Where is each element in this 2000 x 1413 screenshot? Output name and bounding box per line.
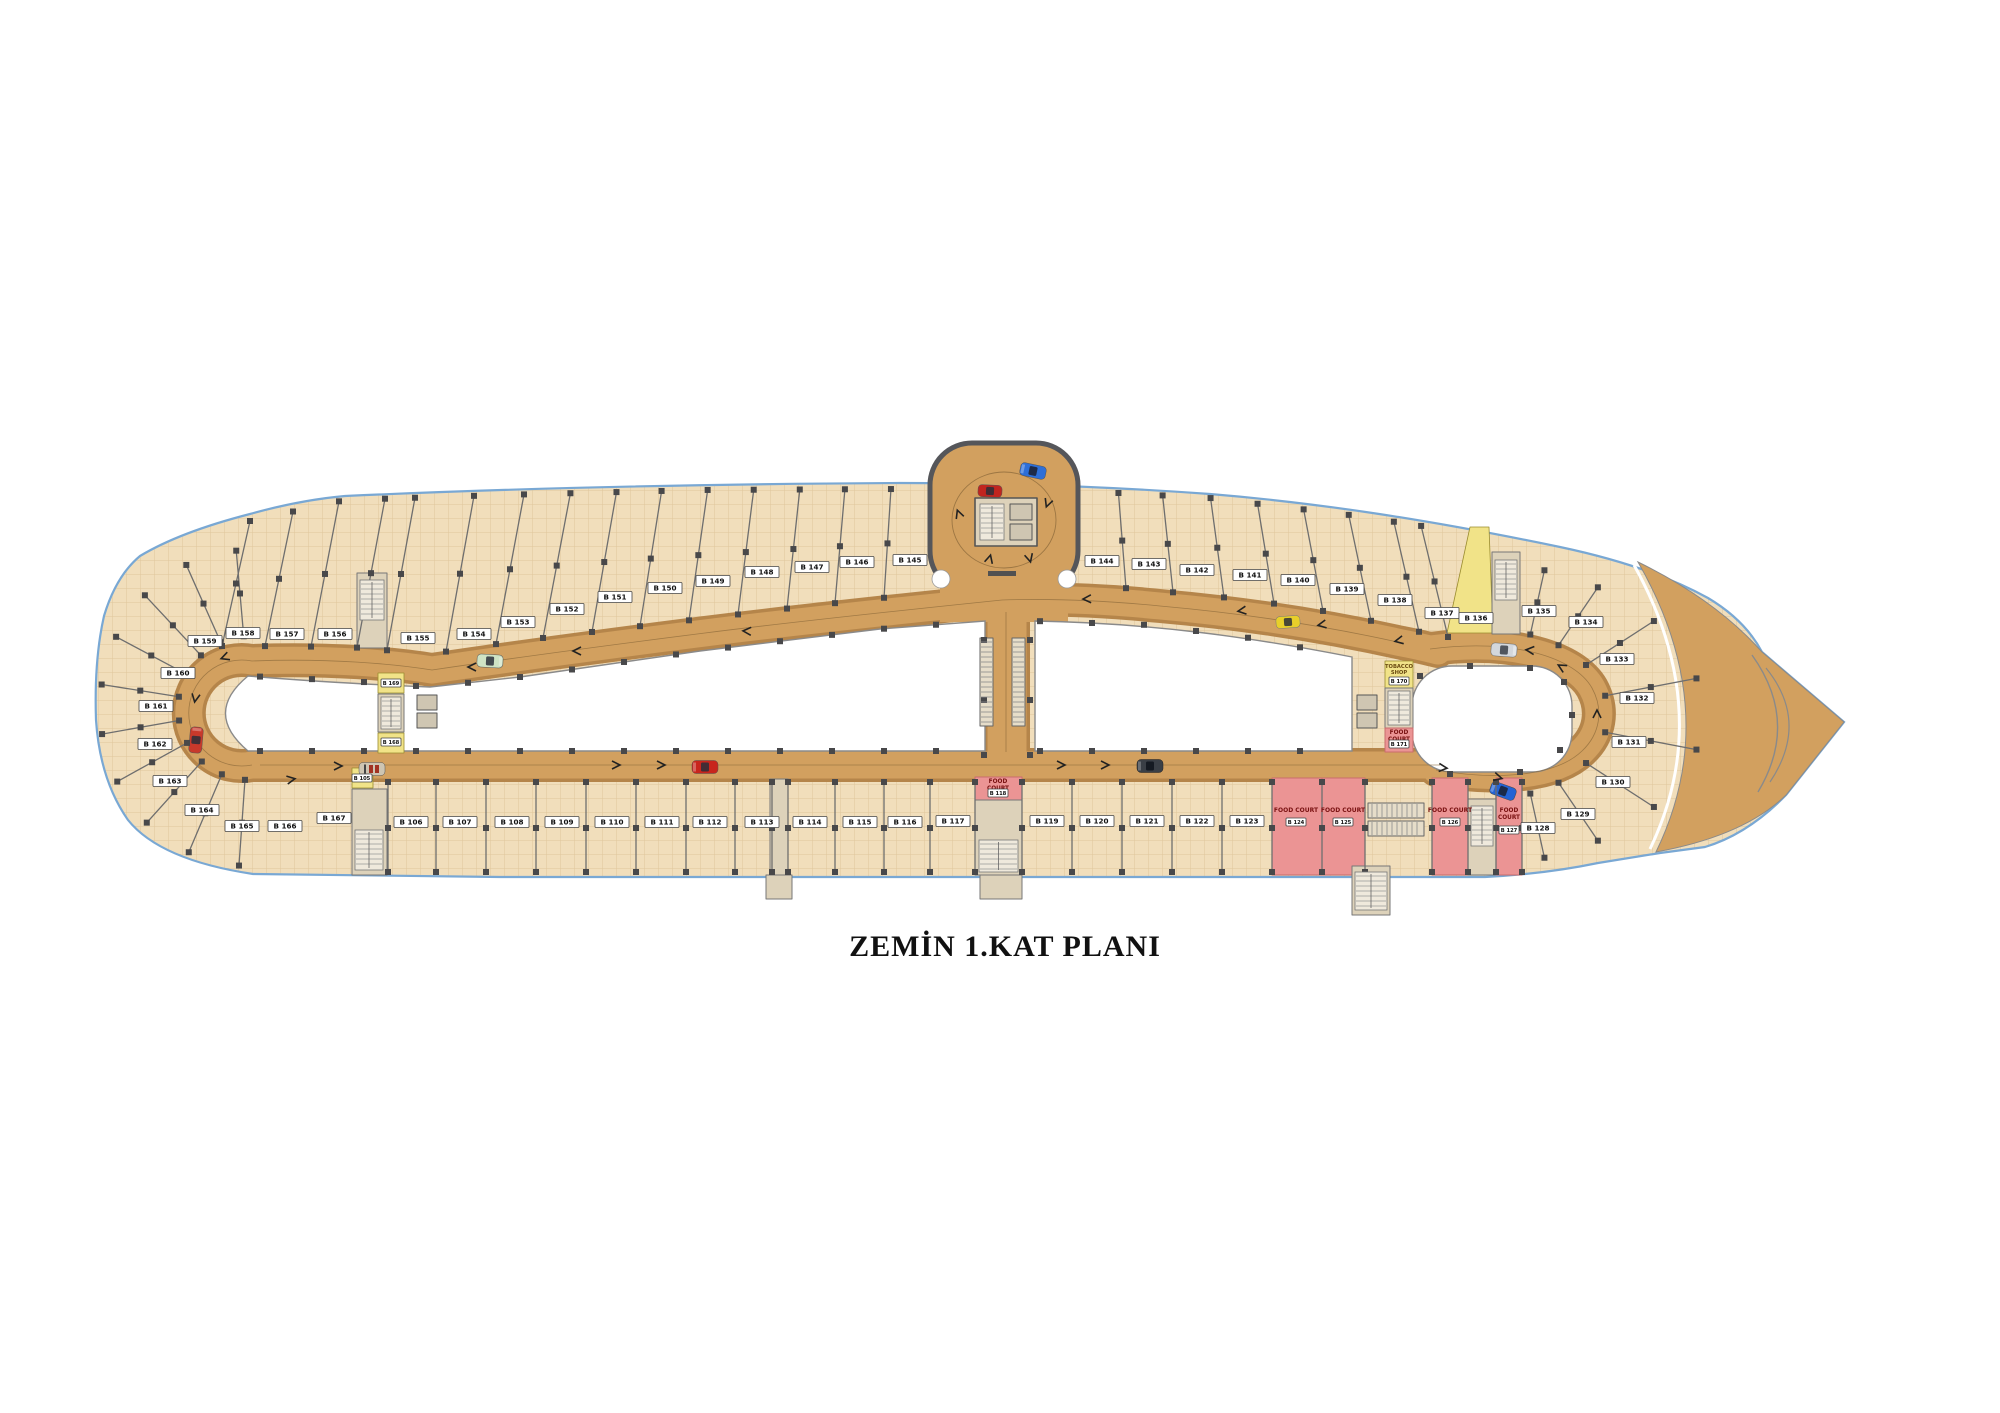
unit-label-B-161: B 161 [139, 701, 173, 712]
stairs-icon [381, 697, 401, 729]
svg-text:B 153: B 153 [507, 618, 530, 627]
unit-label-B-142: B 142 [1180, 565, 1214, 576]
unit-label-B-152: B 152 [550, 604, 584, 615]
unit-label-B-154: B 154 [457, 629, 491, 640]
unit-label-B-126: B 126 [1440, 818, 1460, 826]
unit-label-B-105: B 105 [352, 774, 372, 782]
stop-line [988, 571, 1016, 576]
svg-text:B 151: B 151 [604, 593, 627, 602]
unit-label-B-128: B 128 [1521, 823, 1555, 834]
page-title: ZEMİN 1.KAT PLANI [805, 930, 1205, 964]
unit-label-B-115: B 115 [843, 817, 877, 828]
svg-text:B 163: B 163 [159, 777, 182, 786]
svg-text:SHOP: SHOP [1391, 670, 1407, 676]
svg-text:B 134: B 134 [1575, 618, 1598, 627]
unit-label-B-149: B 149 [696, 576, 730, 587]
svg-text:B 108: B 108 [501, 818, 524, 827]
food-court-label: FOOD COURT [1274, 807, 1319, 814]
svg-text:B 122: B 122 [1186, 817, 1209, 826]
core-protrusion [766, 875, 792, 899]
unit-label-B-119: B 119 [1030, 816, 1064, 827]
car-green-upper-road [477, 654, 504, 668]
svg-text:FOOD: FOOD [1500, 808, 1519, 814]
svg-text:FOOD: FOOD [1390, 730, 1409, 736]
unit-label-B-158: B 158 [226, 628, 260, 639]
unit-label-B-169: B 169 [381, 679, 401, 687]
unit-label-B-134: B 134 [1569, 617, 1603, 628]
unit-label-B-167: B 167 [317, 813, 351, 824]
unit-label-B-124: B 124 [1286, 818, 1306, 826]
entry-loop-neck [940, 560, 1068, 622]
unit-label-B-118: B 118 [988, 789, 1008, 797]
svg-text:B 161: B 161 [145, 702, 168, 711]
elevator-icon [1010, 504, 1032, 520]
svg-text:B 171: B 171 [1391, 742, 1408, 748]
car-red-left-loop [188, 726, 203, 753]
svg-text:B 152: B 152 [556, 605, 579, 614]
unit-label-B-165: B 165 [225, 821, 259, 832]
svg-text:B 123: B 123 [1236, 817, 1259, 826]
svg-text:B 143: B 143 [1138, 560, 1161, 569]
svg-text:B 133: B 133 [1606, 655, 1629, 664]
unit-label-B-136: B 136 [1459, 613, 1493, 624]
food-court-b126-area [1432, 778, 1468, 875]
svg-text:B 150: B 150 [654, 584, 677, 593]
svg-text:B 167: B 167 [323, 814, 346, 823]
svg-text:COURT: COURT [1498, 815, 1520, 821]
unit-label-B-153: B 153 [501, 617, 535, 628]
svg-text:B 166: B 166 [274, 822, 297, 831]
neck-notch-left [932, 570, 950, 588]
svg-text:B 138: B 138 [1384, 596, 1407, 605]
unit-label-B-116: B 116 [888, 817, 922, 828]
unit-label-B-110: B 110 [595, 817, 629, 828]
svg-text:B 119: B 119 [1036, 817, 1059, 826]
svg-text:B 121: B 121 [1136, 817, 1159, 826]
svg-text:B 113: B 113 [751, 818, 774, 827]
stairs-icon [1495, 560, 1517, 600]
unit-label-B-117: B 117 [936, 816, 970, 827]
unit-label-B-150: B 150 [648, 583, 682, 594]
unit-label-B-133: B 133 [1600, 654, 1634, 665]
unit-label-B-120: B 120 [1080, 816, 1114, 827]
svg-text:B 135: B 135 [1528, 607, 1551, 616]
unit-label-B-147: B 147 [795, 562, 829, 573]
elevator-icon [417, 713, 437, 728]
svg-text:B 118: B 118 [990, 791, 1007, 797]
svg-text:B 131: B 131 [1618, 738, 1641, 747]
neck-notch-right [1058, 570, 1076, 588]
unit-label-B-107: B 107 [443, 817, 477, 828]
svg-text:B 145: B 145 [899, 556, 922, 565]
svg-text:B 115: B 115 [849, 818, 872, 827]
unit-label-B-156: B 156 [318, 629, 352, 640]
unit-label-B-108: B 108 [495, 817, 529, 828]
svg-text:B 147: B 147 [801, 563, 824, 572]
unit-label-B-138: B 138 [1378, 595, 1412, 606]
svg-text:B 130: B 130 [1602, 778, 1625, 787]
svg-text:B 120: B 120 [1086, 817, 1109, 826]
svg-text:B 156: B 156 [324, 630, 347, 639]
stairs-icon [355, 830, 383, 870]
svg-text:FOOD: FOOD [989, 779, 1008, 785]
svg-text:B 165: B 165 [231, 822, 254, 831]
unit-label-B-123: B 123 [1230, 816, 1264, 827]
car-black-lower-road [1137, 760, 1163, 773]
unit-label-B-125: B 125 [1333, 818, 1353, 826]
unit-label-B-137: B 137 [1425, 608, 1459, 619]
unit-label-B-127: B 127 [1499, 826, 1519, 834]
svg-text:B 164: B 164 [191, 806, 214, 815]
unit-label-B-160: B 160 [161, 668, 195, 679]
unit-label-B-144: B 144 [1085, 556, 1119, 567]
food-court-label: FOODCOURT [1498, 808, 1520, 821]
svg-text:B 149: B 149 [702, 577, 725, 586]
floor-plan-page: B 158B 157B 156B 155B 154B 153B 152B 151… [0, 0, 2000, 1413]
unit-label-B-131: B 131 [1612, 737, 1646, 748]
svg-text:FOOD COURT: FOOD COURT [1321, 807, 1366, 814]
stairs-icon [980, 504, 1004, 540]
unit-label-B-168: B 168 [381, 738, 401, 746]
unit-label-B-143: B 143 [1132, 559, 1166, 570]
svg-text:B 117: B 117 [942, 817, 965, 826]
svg-text:B 162: B 162 [144, 740, 167, 749]
svg-text:B 124: B 124 [1288, 820, 1305, 826]
svg-text:B 129: B 129 [1567, 810, 1590, 819]
escalator-icon [1368, 821, 1424, 836]
right-loop-island [1412, 666, 1572, 772]
car-silver-right-loop [1491, 643, 1518, 658]
unit-label-B-130: B 130 [1596, 777, 1630, 788]
unit-label-B-151: B 151 [598, 592, 632, 603]
unit-label-B-171: B 171 [1389, 740, 1409, 748]
unit-label-B-114: B 114 [793, 817, 827, 828]
unit-label-B-166: B 166 [268, 821, 302, 832]
food-court-b125-area [1322, 778, 1365, 875]
unit-label-B-129: B 129 [1561, 809, 1595, 820]
elevator-icon [417, 695, 437, 710]
unit-label-B-145: B 145 [893, 555, 927, 566]
svg-text:B 160: B 160 [167, 669, 190, 678]
car-convertible-lower-road [359, 763, 385, 776]
svg-text:B 169: B 169 [383, 681, 400, 687]
svg-text:B 112: B 112 [699, 818, 722, 827]
stairs-icon [1471, 806, 1493, 846]
svg-text:B 111: B 111 [651, 818, 674, 827]
unit-label-B-157: B 157 [270, 629, 304, 640]
svg-text:B 154: B 154 [463, 630, 486, 639]
svg-text:B 116: B 116 [894, 818, 917, 827]
svg-text:B 170: B 170 [1391, 679, 1408, 685]
unit-label-B-146: B 146 [840, 557, 874, 568]
elevator-icon [1010, 524, 1032, 540]
svg-text:B 107: B 107 [449, 818, 472, 827]
unit-label-B-132: B 132 [1620, 693, 1654, 704]
svg-text:B 125: B 125 [1335, 820, 1352, 826]
unit-label-B-159: B 159 [188, 636, 222, 647]
unit-label-B-148: B 148 [745, 567, 779, 578]
car-red-entry-loop [978, 484, 1003, 497]
elevator-icon [1357, 713, 1377, 728]
svg-text:B 158: B 158 [232, 629, 255, 638]
car-taxi-upper-road [1276, 615, 1301, 629]
svg-text:B 114: B 114 [799, 818, 822, 827]
unit-label-B-112: B 112 [693, 817, 727, 828]
svg-text:B 106: B 106 [400, 818, 423, 827]
svg-text:B 157: B 157 [276, 630, 299, 639]
stairs-icon [1388, 691, 1410, 725]
svg-text:B 109: B 109 [551, 818, 574, 827]
core-protrusion [980, 875, 1022, 899]
svg-text:B 105: B 105 [354, 776, 371, 782]
svg-text:B 132: B 132 [1626, 694, 1649, 703]
unit-label-B-170: B 170 [1389, 677, 1409, 685]
floor-plan-canvas: B 158B 157B 156B 155B 154B 153B 152B 151… [0, 0, 2000, 1413]
svg-text:B 110: B 110 [601, 818, 624, 827]
escalator-icon [1368, 803, 1424, 818]
car-red-lower-road [692, 761, 718, 774]
food-court-label: FOOD COURT [1428, 807, 1473, 814]
svg-text:B 159: B 159 [194, 637, 217, 646]
unit-label-B-164: B 164 [185, 805, 219, 816]
svg-text:B 141: B 141 [1239, 571, 1262, 580]
svg-text:B 168: B 168 [383, 740, 400, 746]
elevator-icon [1357, 695, 1377, 710]
unit-label-B-162: B 162 [138, 739, 172, 750]
svg-text:B 128: B 128 [1527, 824, 1550, 833]
svg-text:FOOD COURT: FOOD COURT [1428, 807, 1473, 814]
stairs-icon [360, 580, 384, 620]
unit-label-B-139: B 139 [1330, 584, 1364, 595]
svg-text:B 146: B 146 [846, 558, 869, 567]
svg-text:B 142: B 142 [1186, 566, 1209, 575]
unit-label-B-163: B 163 [153, 776, 187, 787]
svg-text:B 139: B 139 [1336, 585, 1359, 594]
unit-label-B-141: B 141 [1233, 570, 1267, 581]
unit-label-B-140: B 140 [1281, 575, 1315, 586]
svg-text:B 127: B 127 [1501, 828, 1518, 834]
svg-text:B 126: B 126 [1442, 820, 1459, 826]
svg-text:B 137: B 137 [1431, 609, 1454, 618]
unit-label-B-113: B 113 [745, 817, 779, 828]
unit-label-B-135: B 135 [1522, 606, 1556, 617]
food-court-b124-area [1272, 778, 1322, 875]
food-court-label: FOOD COURT [1321, 807, 1366, 814]
unit-label-B-121: B 121 [1130, 816, 1164, 827]
svg-text:B 140: B 140 [1287, 576, 1310, 585]
svg-text:FOOD COURT: FOOD COURT [1274, 807, 1319, 814]
svg-text:B 144: B 144 [1091, 557, 1114, 566]
unit-label-B-106: B 106 [394, 817, 428, 828]
svg-text:B 136: B 136 [1465, 614, 1488, 623]
unit-label-B-155: B 155 [401, 633, 435, 644]
stairs-icon [979, 840, 1018, 872]
unit-label-B-122: B 122 [1180, 816, 1214, 827]
unit-label-B-111: B 111 [645, 817, 679, 828]
unit-label-B-109: B 109 [545, 817, 579, 828]
svg-text:B 148: B 148 [751, 568, 774, 577]
stairs-icon [1355, 872, 1387, 910]
svg-text:B 155: B 155 [407, 634, 430, 643]
